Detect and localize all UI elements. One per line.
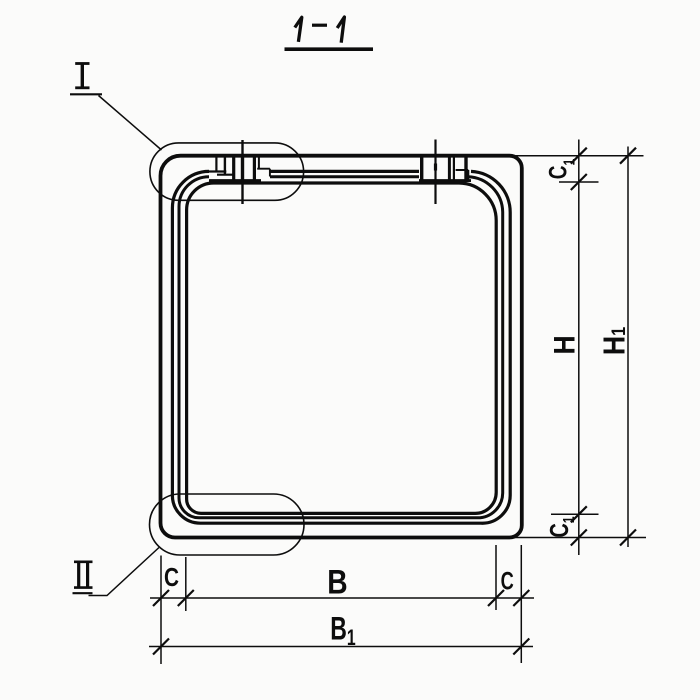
svg-text:H: H: [548, 335, 581, 354]
svg-text:C: C: [164, 563, 179, 592]
svg-text:C: C: [501, 567, 514, 596]
svg-text:B: B: [327, 563, 347, 601]
